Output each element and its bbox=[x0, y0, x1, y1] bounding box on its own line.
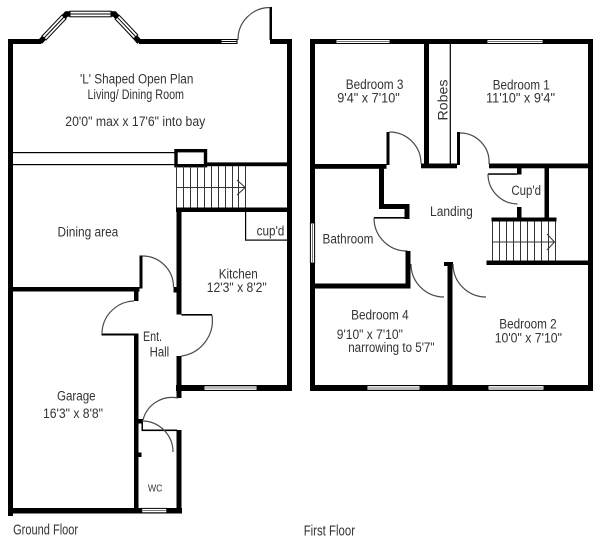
svg-text:Dining area: Dining area bbox=[58, 225, 119, 240]
svg-text:Cup'd: Cup'd bbox=[511, 183, 541, 198]
svg-text:20'0" max x 17'6" into bay: 20'0" max x 17'6" into bay bbox=[65, 114, 205, 129]
svg-text:cup'd: cup'd bbox=[257, 224, 285, 239]
svg-text:Landing: Landing bbox=[430, 204, 473, 219]
svg-text:Living/ Dining Room: Living/ Dining Room bbox=[88, 87, 185, 102]
svg-text:Bathroom: Bathroom bbox=[323, 231, 374, 246]
svg-text:Bedroom 2: Bedroom 2 bbox=[499, 317, 556, 332]
svg-text:Robes: Robes bbox=[435, 79, 450, 120]
svg-text:10'0" x 7'10": 10'0" x 7'10" bbox=[495, 331, 562, 346]
svg-text:Ent.: Ent. bbox=[143, 329, 162, 344]
svg-text:Garage: Garage bbox=[57, 388, 96, 403]
svg-text:'L' Shaped Open Plan: 'L' Shaped Open Plan bbox=[80, 72, 193, 87]
svg-text:First Floor: First Floor bbox=[304, 523, 355, 539]
svg-text:16'3" x 8'8": 16'3" x 8'8" bbox=[43, 406, 103, 421]
svg-text:WC: WC bbox=[148, 483, 163, 495]
svg-text:9'4" x 7'10": 9'4" x 7'10" bbox=[337, 91, 400, 106]
svg-text:Hall: Hall bbox=[150, 345, 170, 360]
svg-text:narrowing to 5'7": narrowing to 5'7" bbox=[348, 340, 434, 355]
svg-text:Bedroom 4: Bedroom 4 bbox=[351, 307, 409, 322]
svg-text:11'10" x 9'4": 11'10" x 9'4" bbox=[486, 91, 555, 106]
svg-text:Ground Floor: Ground Floor bbox=[13, 523, 78, 539]
svg-text:12'3" x 8'2": 12'3" x 8'2" bbox=[207, 280, 267, 295]
